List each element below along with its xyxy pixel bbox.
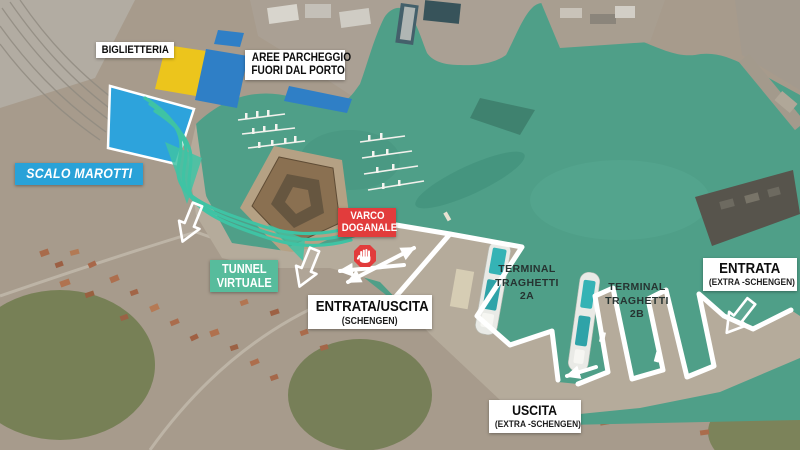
port-map: BIGLIETTERIA AREE PARCHEGGIO FUORI DAL P…	[0, 0, 800, 450]
label-entrata-uscita: ENTRATA/USCITA (SCHENGEN)	[308, 295, 432, 329]
parking-area-3	[214, 30, 244, 47]
label-biglietteria: BIGLIETTERIA	[96, 42, 174, 58]
label-uscita-extra: USCITA (EXTRA -SCHENGEN)	[489, 400, 581, 433]
label-entrata-extra: ENTRATA (EXTRA -SCHENGEN)	[703, 258, 797, 291]
stop-hand-icon	[353, 244, 377, 268]
label-varco-doganale: VARCO DOGANALE	[338, 208, 396, 237]
label-terminal-2a: TERMINAL TRAGHETTI 2A	[487, 263, 567, 304]
label-aree-parcheggio: AREE PARCHEGGIO FUORI DAL PORTO	[245, 50, 345, 80]
label-tunnel-virtuale: TUNNEL VIRTUALE	[210, 260, 278, 292]
label-terminal-2b: TERMINAL TRAGHETTI 2B	[597, 281, 677, 322]
label-scalo-marotti: SCALO MAROTTI	[15, 163, 143, 185]
satellite-map	[0, 0, 800, 450]
